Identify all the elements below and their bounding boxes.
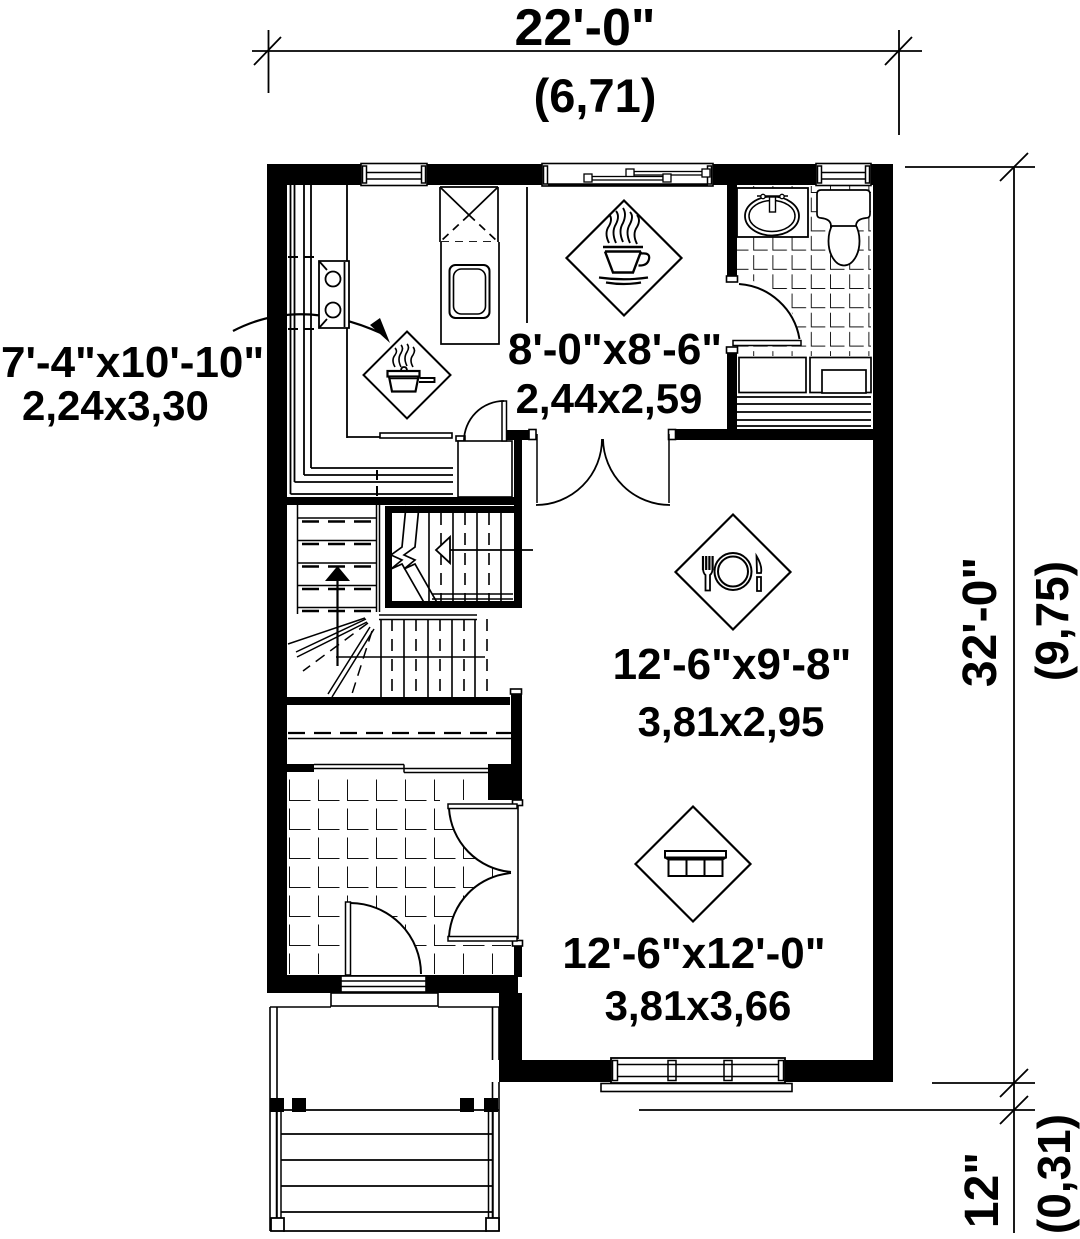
svg-text:32'-0": 32'-0" <box>954 557 1007 687</box>
svg-text:12": 12" <box>956 1152 1009 1228</box>
svg-text:12'-6"x9'-8": 12'-6"x9'-8" <box>613 640 852 689</box>
svg-text:3,81x3,66: 3,81x3,66 <box>605 982 792 1029</box>
svg-text:22'-0": 22'-0" <box>514 0 655 57</box>
svg-text:(0,31): (0,31) <box>1028 1114 1080 1234</box>
svg-text:(9,75): (9,75) <box>1026 561 1078 681</box>
svg-text:12'-6"x12'-0": 12'-6"x12'-0" <box>562 929 825 978</box>
svg-text:(6,71): (6,71) <box>534 69 657 122</box>
svg-text:8'-0"x8'-6": 8'-0"x8'-6" <box>508 325 722 374</box>
svg-text:2,24x3,30: 2,24x3,30 <box>22 382 209 429</box>
svg-text:7'-4"x10'-10": 7'-4"x10'-10" <box>1 338 264 387</box>
svg-text:2,44x2,59: 2,44x2,59 <box>516 375 703 422</box>
svg-text:3,81x2,95: 3,81x2,95 <box>638 698 825 745</box>
